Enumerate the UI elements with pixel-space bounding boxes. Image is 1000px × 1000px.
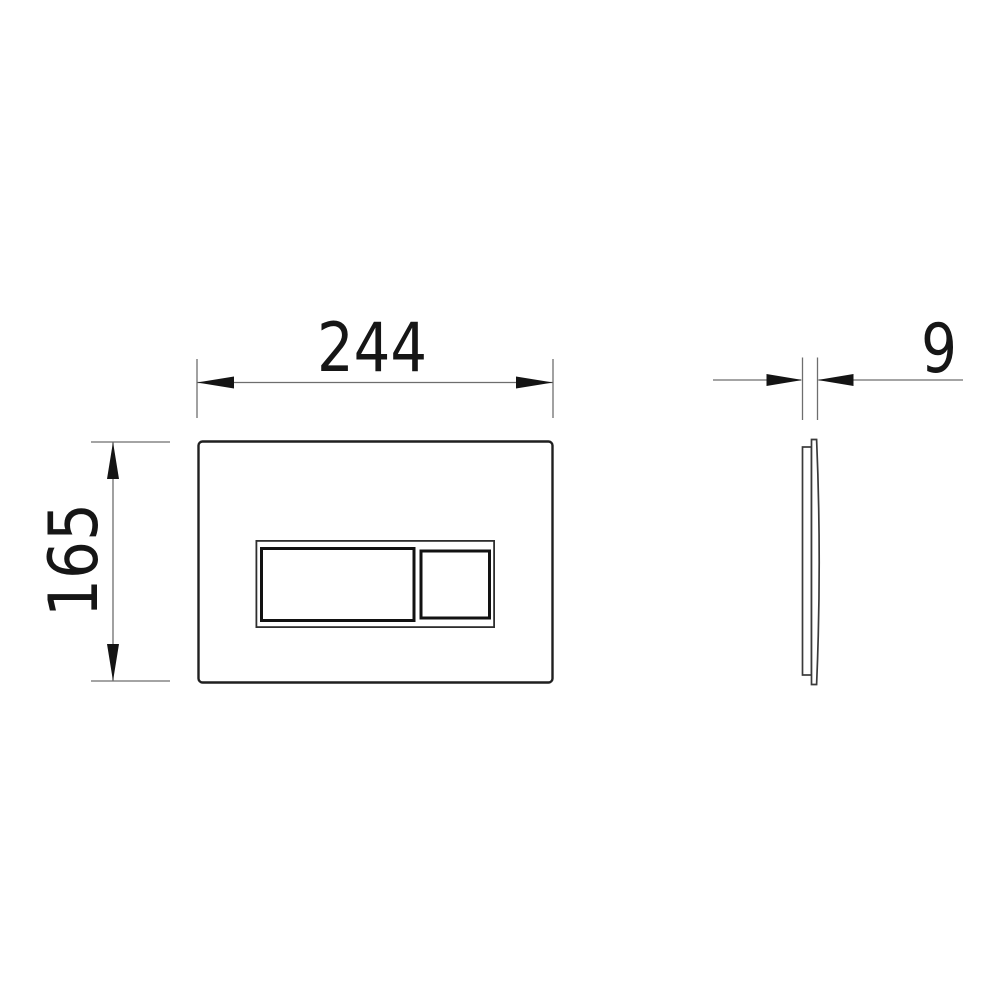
side-view (803, 440, 820, 685)
depth-dimension: 9 (713, 310, 963, 420)
width-dimension: 244 (197, 309, 553, 418)
technical-drawing-canvas: 244 165 9 (0, 0, 1000, 1000)
depth-arrow-right (818, 374, 854, 386)
flush-plate-dimension-drawing: 244 165 9 (0, 0, 1000, 1000)
depth-dimension-label: 9 (921, 310, 957, 389)
plate-side-front-profile (812, 440, 820, 685)
height-dimension: 165 (35, 442, 170, 681)
front-view (199, 442, 553, 683)
plate-side-back-profile (803, 447, 812, 675)
height-dimension-label: 165 (35, 503, 114, 617)
small-flush-button (421, 551, 490, 618)
depth-arrow-left (767, 374, 803, 386)
large-flush-button (262, 549, 415, 621)
height-arrow-top (107, 442, 119, 479)
width-dimension-label: 244 (317, 309, 427, 388)
height-arrow-bottom (107, 644, 119, 681)
width-arrow-right (516, 377, 553, 389)
width-arrow-left (197, 377, 234, 389)
